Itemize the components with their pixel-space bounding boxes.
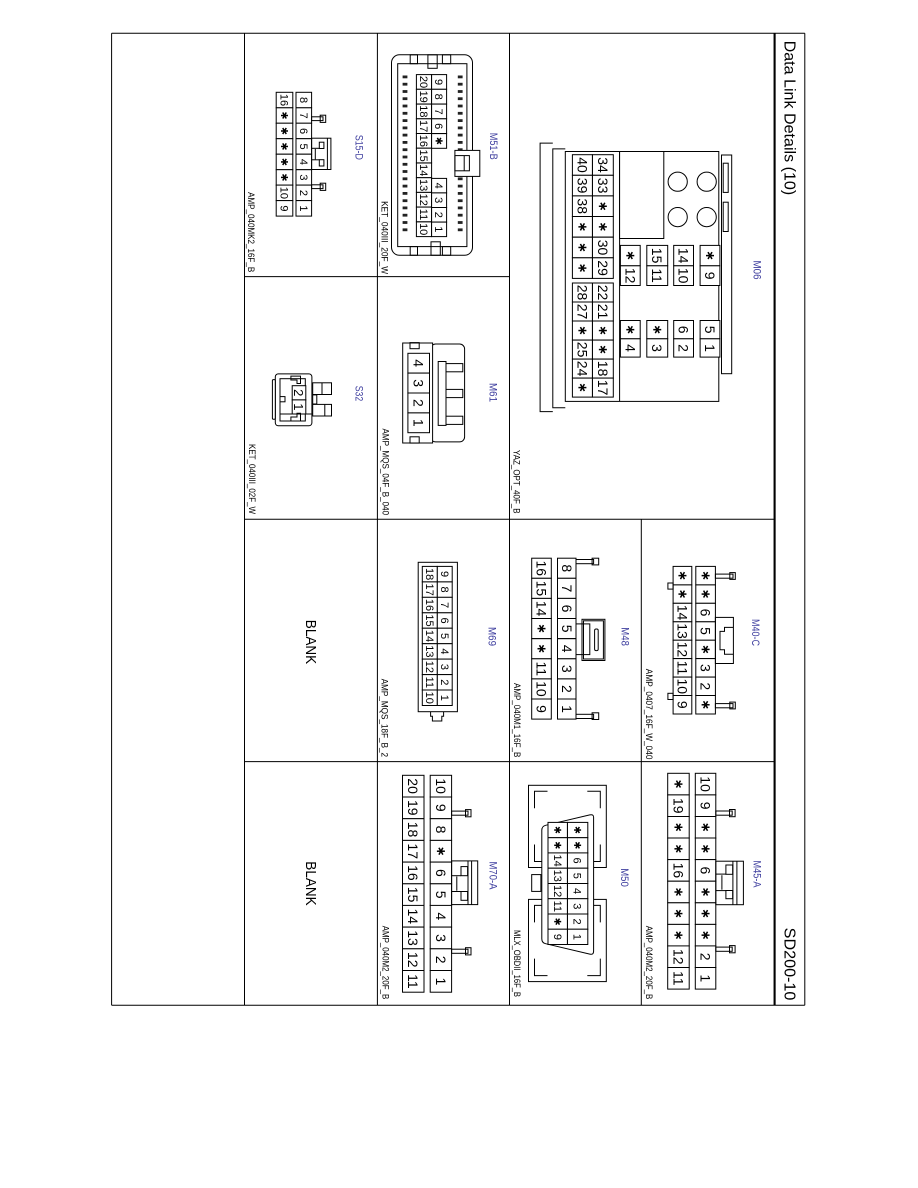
svg-text:6: 6: [433, 869, 449, 877]
svg-text:7: 7: [559, 585, 575, 593]
svg-text:Data Link Details (10): Data Link Details (10): [781, 41, 798, 196]
svg-text:10: 10: [423, 692, 435, 704]
svg-text:13: 13: [551, 870, 563, 882]
svg-text:14: 14: [423, 630, 435, 642]
svg-text:5: 5: [571, 873, 583, 879]
svg-text:8: 8: [297, 97, 309, 103]
svg-text:27: 27: [574, 304, 590, 320]
svg-text:1: 1: [433, 978, 449, 986]
svg-text:2: 2: [559, 685, 575, 693]
svg-text:AMP_MQS_04F_B_040: AMP_MQS_04F_B_040: [381, 429, 391, 516]
svg-text:11: 11: [670, 971, 686, 986]
svg-text:S32: S32: [352, 386, 364, 402]
svg-text:2: 2: [297, 190, 309, 196]
svg-text:M48: M48: [618, 627, 630, 646]
svg-text:2: 2: [291, 389, 306, 396]
svg-text:M70-A: M70-A: [487, 862, 499, 891]
svg-text:30: 30: [595, 240, 611, 256]
svg-text:8: 8: [432, 94, 444, 100]
svg-text:13: 13: [405, 930, 421, 946]
svg-text:17: 17: [417, 120, 429, 132]
svg-text:8: 8: [438, 587, 450, 593]
svg-text:7: 7: [432, 108, 444, 114]
svg-text:20: 20: [417, 76, 429, 88]
svg-text:18: 18: [405, 822, 421, 838]
svg-text:2: 2: [432, 212, 444, 218]
svg-text:18: 18: [595, 361, 611, 377]
svg-text:12: 12: [670, 949, 686, 965]
svg-text:M69: M69: [485, 627, 497, 646]
svg-text:1: 1: [559, 705, 575, 713]
svg-text:15: 15: [534, 581, 550, 597]
svg-text:28: 28: [574, 285, 590, 301]
svg-text:34: 34: [595, 157, 611, 173]
svg-text:11: 11: [423, 677, 435, 688]
svg-text:11: 11: [534, 662, 550, 677]
svg-text:4: 4: [622, 344, 638, 352]
svg-text:1: 1: [698, 974, 714, 982]
svg-text:10: 10: [417, 223, 429, 235]
svg-text:29: 29: [595, 260, 611, 276]
svg-text:13: 13: [423, 645, 435, 657]
svg-text:3: 3: [571, 903, 583, 909]
svg-text:14: 14: [676, 248, 692, 264]
svg-text:4: 4: [432, 183, 444, 189]
svg-text:5: 5: [698, 627, 714, 635]
svg-text:12: 12: [622, 268, 638, 284]
svg-text:6: 6: [676, 326, 692, 334]
svg-text:8: 8: [559, 564, 575, 572]
svg-text:5: 5: [702, 326, 718, 334]
svg-text:M50: M50: [618, 868, 630, 887]
svg-text:22: 22: [595, 285, 611, 301]
svg-text:BLANK: BLANK: [302, 861, 319, 905]
svg-text:16: 16: [423, 599, 435, 611]
svg-text:13: 13: [674, 623, 690, 639]
svg-text:18: 18: [417, 105, 429, 117]
svg-text:17: 17: [405, 843, 421, 859]
svg-text:AMP_040M2_20F_B: AMP_040M2_20F_B: [644, 926, 654, 1000]
svg-text:2: 2: [571, 919, 583, 925]
svg-text:4: 4: [411, 359, 427, 367]
svg-text:KET_040III_20F_W: KET_040III_20F_W: [380, 201, 390, 274]
svg-text:2: 2: [433, 956, 449, 964]
svg-text:5: 5: [438, 633, 450, 639]
svg-text:24: 24: [574, 361, 590, 377]
svg-text:1: 1: [432, 226, 444, 232]
svg-text:9: 9: [534, 705, 550, 713]
svg-text:6: 6: [698, 867, 714, 875]
svg-text:4: 4: [438, 648, 450, 654]
svg-text:9: 9: [433, 804, 449, 812]
svg-text:2: 2: [676, 344, 692, 352]
svg-text:10: 10: [676, 268, 692, 284]
svg-text:M61: M61: [486, 383, 498, 402]
svg-text:4: 4: [433, 912, 449, 920]
svg-text:8: 8: [433, 826, 449, 834]
svg-text:16: 16: [278, 94, 290, 106]
svg-text:AMP_040M2_20F_B: AMP_040M2_20F_B: [381, 926, 391, 1000]
svg-text:9: 9: [698, 802, 714, 810]
svg-text:S15-D: S15-D: [352, 135, 364, 160]
svg-text:6: 6: [698, 609, 714, 617]
svg-text:12: 12: [551, 885, 563, 897]
svg-text:12: 12: [423, 661, 435, 673]
svg-text:AMP_040MK2_16F_B: AMP_040MK2_16F_B: [246, 192, 256, 272]
svg-text:3: 3: [649, 344, 665, 352]
svg-text:15: 15: [423, 614, 435, 626]
svg-text:11: 11: [405, 974, 421, 989]
svg-text:M06: M06: [751, 261, 763, 280]
svg-text:40: 40: [574, 157, 590, 173]
svg-text:14: 14: [534, 601, 550, 617]
svg-text:2: 2: [698, 953, 714, 961]
svg-text:1: 1: [411, 419, 427, 427]
svg-text:3: 3: [432, 197, 444, 203]
svg-text:14: 14: [417, 164, 429, 176]
svg-text:1: 1: [702, 344, 718, 352]
svg-text:33: 33: [595, 178, 611, 194]
svg-text:15: 15: [405, 887, 421, 903]
svg-text:17: 17: [423, 583, 435, 595]
svg-text:10: 10: [534, 681, 550, 697]
svg-text:10: 10: [278, 187, 290, 199]
svg-text:15: 15: [417, 149, 429, 161]
svg-text:10: 10: [698, 776, 714, 792]
svg-text:18: 18: [423, 568, 435, 580]
svg-text:38: 38: [574, 198, 590, 214]
svg-text:39: 39: [574, 178, 590, 194]
svg-text:6: 6: [559, 605, 575, 613]
svg-text:M40-C: M40-C: [749, 619, 761, 646]
svg-text:MLX_OBDII_16F_B: MLX_OBDII_16F_B: [512, 930, 522, 997]
svg-text:AMP_MQS_18F_B_2: AMP_MQS_18F_B_2: [380, 679, 390, 757]
svg-text:6: 6: [297, 128, 309, 134]
svg-text:6: 6: [571, 858, 583, 864]
svg-text:1: 1: [571, 934, 583, 940]
svg-text:13: 13: [417, 179, 429, 191]
svg-text:14: 14: [551, 854, 563, 866]
svg-text:YAZ_OPT_40F_B: YAZ_OPT_40F_B: [511, 450, 521, 514]
svg-text:3: 3: [411, 379, 427, 387]
svg-text:14: 14: [405, 909, 421, 925]
svg-text:25: 25: [574, 342, 590, 358]
svg-text:7: 7: [297, 112, 309, 118]
svg-text:7: 7: [438, 602, 450, 608]
svg-text:5: 5: [297, 143, 309, 149]
svg-text:5: 5: [433, 891, 449, 899]
svg-text:16: 16: [417, 135, 429, 147]
svg-text:3: 3: [433, 934, 449, 942]
svg-text:19: 19: [670, 798, 686, 814]
svg-text:11: 11: [649, 268, 665, 283]
svg-text:9: 9: [551, 934, 563, 940]
svg-text:19: 19: [405, 800, 421, 816]
svg-text:4: 4: [559, 645, 575, 653]
svg-text:11: 11: [674, 661, 690, 676]
svg-text:2: 2: [698, 682, 714, 690]
svg-text:9: 9: [702, 272, 718, 280]
svg-text:15: 15: [649, 248, 665, 264]
svg-text:4: 4: [297, 159, 309, 165]
svg-text:M51-B: M51-B: [487, 133, 499, 160]
svg-text:BLANK: BLANK: [302, 620, 319, 664]
svg-text:10: 10: [674, 679, 690, 695]
svg-text:9: 9: [438, 571, 450, 577]
svg-text:3: 3: [698, 664, 714, 672]
svg-text:20: 20: [405, 778, 421, 794]
svg-text:6: 6: [432, 123, 444, 129]
svg-text:1: 1: [297, 205, 309, 211]
svg-text:KET_040III_02F_W: KET_040III_02F_W: [247, 444, 257, 515]
svg-text:9: 9: [278, 205, 290, 211]
svg-text:10: 10: [433, 778, 449, 794]
svg-text:16: 16: [405, 865, 421, 881]
svg-text:12: 12: [405, 952, 421, 968]
svg-text:3: 3: [559, 665, 575, 673]
svg-text:12: 12: [674, 642, 690, 658]
svg-text:11: 11: [417, 209, 429, 220]
svg-text:4: 4: [571, 888, 583, 894]
svg-text:M45-A: M45-A: [751, 861, 763, 889]
svg-text:9: 9: [674, 701, 690, 709]
svg-text:2: 2: [438, 679, 450, 685]
svg-text:AMP_040M1_16F_B: AMP_040M1_16F_B: [512, 683, 522, 757]
svg-text:SD200-10: SD200-10: [781, 928, 798, 1001]
svg-text:1: 1: [438, 695, 450, 701]
svg-text:3: 3: [297, 174, 309, 180]
svg-text:14: 14: [674, 605, 690, 621]
svg-text:9: 9: [432, 79, 444, 85]
svg-text:16: 16: [534, 561, 550, 577]
svg-text:21: 21: [595, 304, 611, 320]
svg-text:AMP_0407_16F_W_040: AMP_0407_16F_W_040: [644, 669, 654, 760]
svg-text:5: 5: [559, 625, 575, 633]
svg-text:6: 6: [438, 617, 450, 623]
svg-text:16: 16: [670, 863, 686, 879]
svg-text:17: 17: [595, 380, 611, 396]
svg-text:19: 19: [417, 91, 429, 103]
svg-text:1: 1: [291, 403, 306, 410]
svg-text:3: 3: [438, 664, 450, 670]
svg-text:12: 12: [417, 194, 429, 206]
svg-text:2: 2: [411, 399, 427, 407]
svg-text:11: 11: [551, 901, 563, 912]
